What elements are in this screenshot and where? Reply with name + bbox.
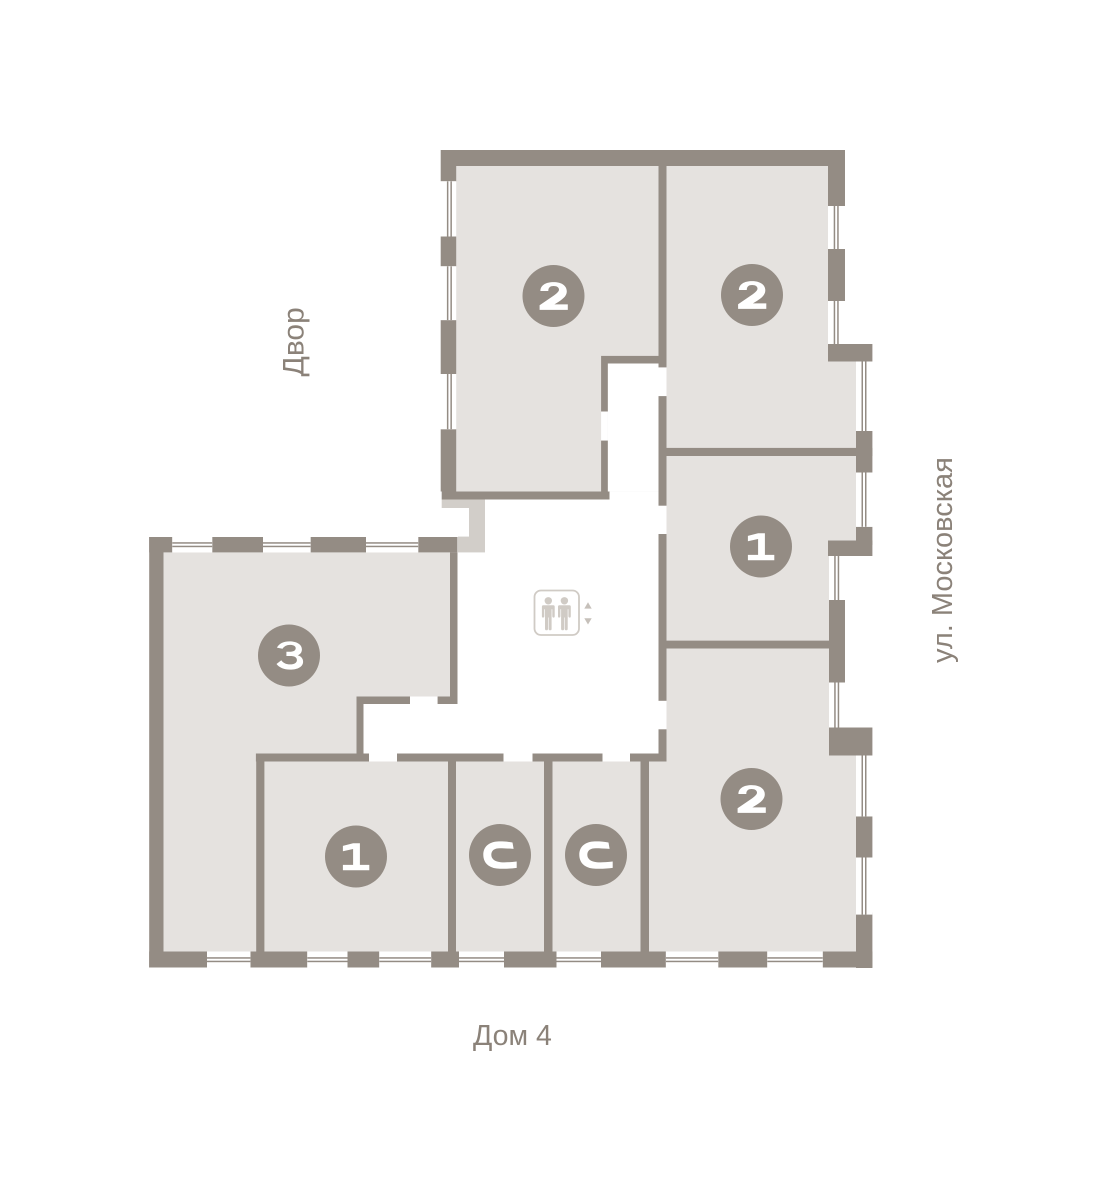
svg-text:Двор: Двор xyxy=(278,307,311,376)
svg-text:ул. Московская: ул. Московская xyxy=(927,457,959,663)
svg-text:Дом 4: Дом 4 xyxy=(473,1020,552,1052)
